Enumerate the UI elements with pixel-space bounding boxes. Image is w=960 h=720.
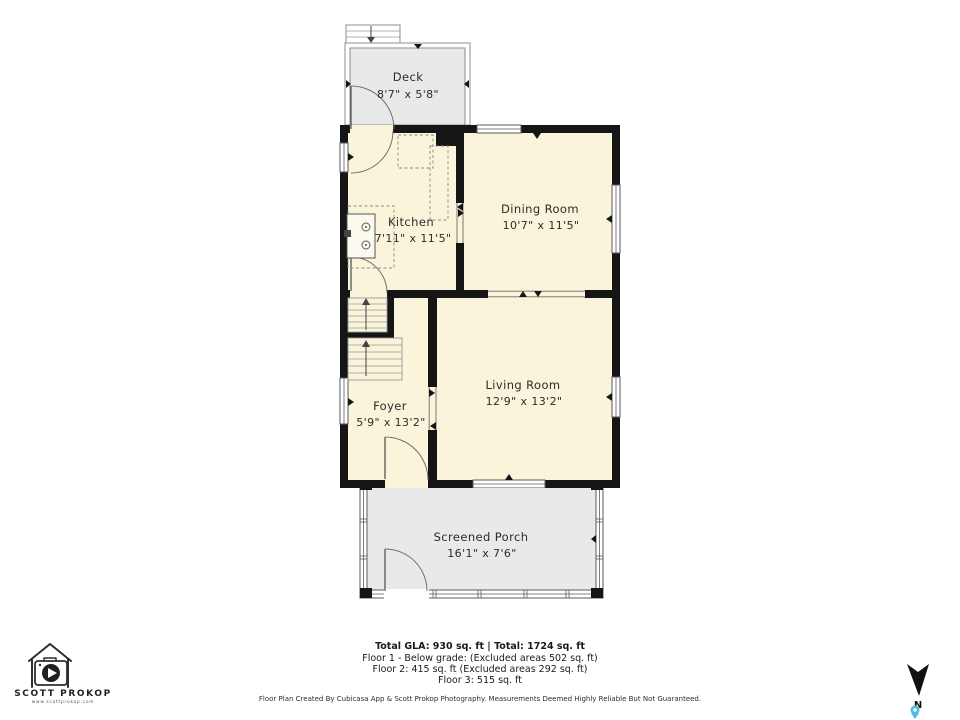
kitchen-dining-wall-upper — [456, 146, 464, 203]
deck-label: Deck — [393, 70, 424, 84]
porch-post — [360, 480, 372, 490]
total-area-summary: Total GLA: 930 sq. ft | Total: 1724 sq. … — [0, 641, 960, 652]
porch-label: Screened Porch — [434, 530, 529, 544]
map-pin-icon — [911, 706, 920, 720]
kitchen-label: Kitchen — [388, 215, 434, 229]
foyer-label: Foyer — [373, 399, 407, 413]
faucet — [344, 230, 351, 237]
dining-dims: 10'7" x 11'5" — [503, 219, 580, 232]
deck-dims: 8'7" x 5'8" — [377, 88, 439, 101]
kitchen-dims: 7'11" x 11'5" — [375, 232, 452, 245]
disclaimer: Floor Plan Created By Cubicasa App & Sco… — [0, 695, 960, 703]
floorplan-drawing: Deck 8'7" x 5'8" Kitchen 7'11" x 11'5" D… — [0, 0, 960, 720]
dining-label: Dining Room — [501, 202, 579, 216]
kitchen-dining-wall-lower — [456, 243, 464, 290]
floor1-summary: Floor 1 - Below grade: (Excluded areas 5… — [0, 653, 960, 664]
living-label: Living Room — [486, 378, 561, 392]
opening-living-dining — [488, 290, 585, 298]
foyer-living-wall-upper — [428, 298, 437, 387]
foyer-living-wall-lower — [428, 430, 437, 480]
house-structure — [340, 86, 620, 494]
deck-steps — [346, 25, 400, 43]
porch-post — [591, 480, 603, 490]
porch-post — [591, 588, 603, 598]
porch-dims: 16'1" x 7'6" — [447, 547, 516, 560]
deck-floor — [350, 48, 465, 125]
floorplan-page: Deck 8'7" x 5'8" Kitchen 7'11" x 11'5" D… — [0, 0, 960, 720]
living-dims: 12'9" x 13'2" — [486, 395, 563, 408]
floor2-summary: Floor 2: 415 sq. ft (Excluded areas 292 … — [0, 664, 960, 675]
kitchen-sink — [344, 214, 375, 258]
stair-landing-wall — [340, 332, 393, 338]
foyer-dims: 5'9" x 13'2" — [356, 416, 425, 429]
chimney-block — [436, 133, 464, 146]
porch-post — [360, 588, 372, 598]
floor3-summary: Floor 3: 515 sq. ft — [0, 675, 960, 686]
